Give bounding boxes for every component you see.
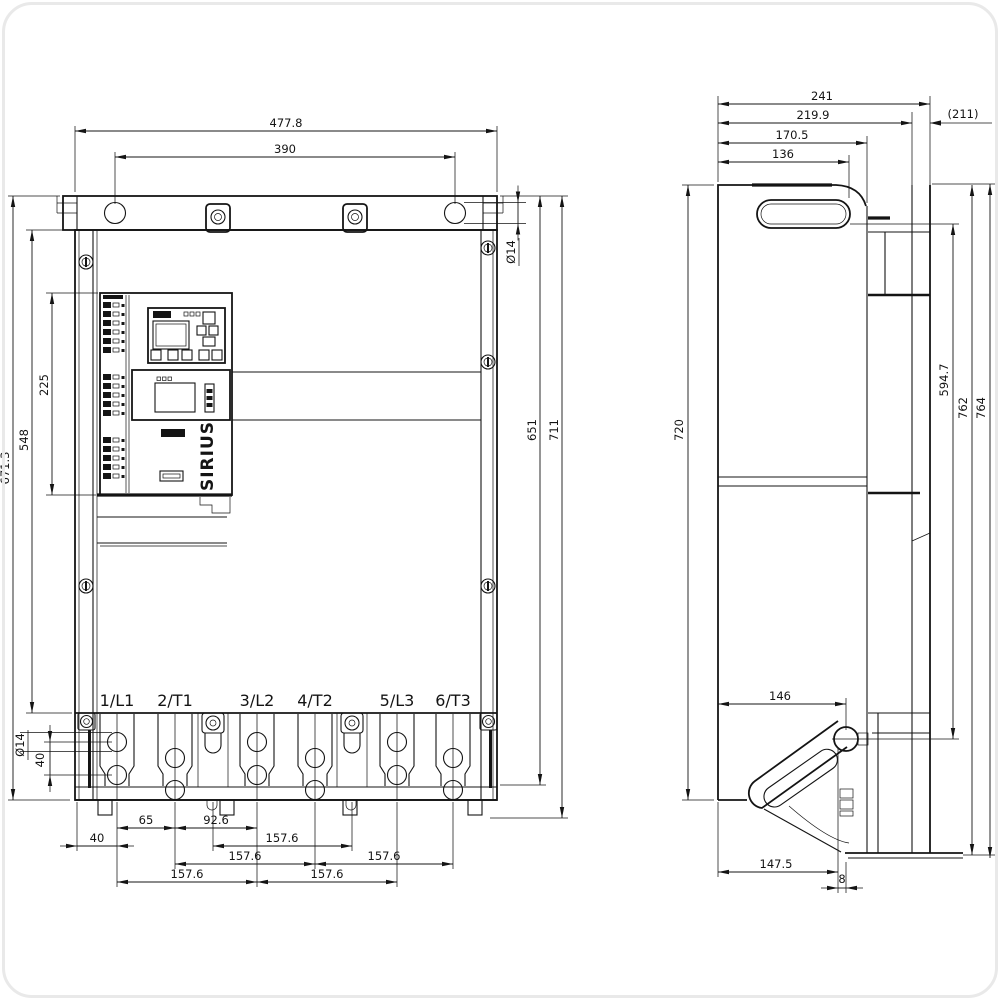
terminal-clamp-right-edge bbox=[480, 713, 497, 730]
front-dimensions: 477.8 390 671.3 548 bbox=[0, 116, 568, 887]
dim-label: Ø14 bbox=[13, 733, 27, 757]
dim-label: 146 bbox=[769, 689, 791, 703]
dim-depth-170-5: 170.5 bbox=[718, 128, 867, 203]
dim-lip-8: 8 bbox=[821, 862, 863, 893]
dim-label: 147.5 bbox=[760, 857, 793, 871]
status-display bbox=[155, 383, 195, 412]
dim-label: Ø14 bbox=[504, 240, 518, 264]
dim-l1-l2-157-6: 157.6 bbox=[117, 867, 257, 884]
terminal-label-3: 3/L2 bbox=[240, 691, 275, 710]
dim-label: 8 bbox=[838, 872, 845, 886]
terminal-clamp-mid-2 bbox=[341, 713, 363, 753]
dim-l1-t1-65: 65 bbox=[117, 813, 175, 830]
dim-label: 477.8 bbox=[270, 116, 303, 130]
dim-label: 241 bbox=[811, 89, 833, 103]
sirius-module: SIRIUS bbox=[97, 293, 232, 495]
dim-height-651: 651 bbox=[500, 196, 568, 785]
dim-slot-to-hole-594-7: 594.7 bbox=[832, 224, 959, 739]
dim-label: 40 bbox=[90, 831, 105, 845]
dim-height-762: 762 bbox=[932, 184, 996, 855]
dim-label: 225 bbox=[37, 374, 51, 396]
terminal-label-4: 4/T2 bbox=[297, 691, 333, 710]
dim-label: 157.6 bbox=[368, 849, 401, 863]
side-dimensions: 241 219.9 (211) 170.5 136 bbox=[672, 89, 996, 893]
terminal-label-2: 2/T1 bbox=[157, 691, 193, 710]
dim-hole-spacing-x: 390 bbox=[115, 142, 455, 204]
terminal-block: 1/L1 2/T1 3/L2 4/T2 5/L3 6/T3 bbox=[78, 691, 497, 800]
drawing-page: SIRIUS bbox=[0, 0, 1000, 1000]
dim-label: 720 bbox=[672, 419, 686, 441]
dim-label: (211) bbox=[948, 107, 979, 121]
dim-label: 219.9 bbox=[797, 108, 830, 122]
dim-label: 157.6 bbox=[229, 849, 262, 863]
front-view: SIRIUS bbox=[0, 116, 568, 887]
dim-label: 762 bbox=[956, 397, 970, 419]
dim-l2-l3-157-6: 157.6 bbox=[257, 867, 397, 884]
display-section bbox=[132, 370, 230, 420]
dim-body-height: 548 bbox=[17, 230, 72, 713]
terminal-label-6: 6/T3 bbox=[435, 691, 471, 710]
dim-label: 548 bbox=[17, 429, 31, 451]
dim-depth-136: 136 bbox=[718, 147, 849, 198]
dim-plate-height-720: 720 bbox=[672, 185, 714, 800]
dim-label: 157.6 bbox=[171, 867, 204, 881]
dim-module-height: 225 bbox=[37, 293, 98, 495]
dim-label: 157.6 bbox=[266, 831, 299, 845]
dim-label: 390 bbox=[274, 142, 296, 156]
dim-height-764: 764 bbox=[974, 184, 992, 858]
dim-depth-219-9: 219.9 bbox=[718, 108, 912, 125]
dim-label: 594.7 bbox=[937, 364, 951, 397]
dim-t1-l2-92-6: 92.6 bbox=[175, 813, 257, 830]
terminal-label-1: 1/L1 bbox=[100, 691, 135, 710]
dim-hole-offset-146: 146 bbox=[718, 689, 846, 730]
flange-clamp-right bbox=[343, 204, 367, 232]
dim-depth-241: 241 bbox=[718, 89, 930, 106]
dim-label: 711 bbox=[547, 419, 561, 441]
dim-label: 157.6 bbox=[311, 867, 344, 881]
dim-height-711: 711 bbox=[490, 196, 568, 818]
dim-t2-t3-157-6: 157.6 bbox=[315, 849, 453, 866]
dim-label: 671.3 bbox=[0, 452, 12, 485]
dim-slot-pitch-157-6: 157.6 bbox=[213, 831, 352, 848]
flange-clamp-left bbox=[206, 204, 230, 232]
side-outline bbox=[718, 96, 963, 858]
mounting-hole-top-right bbox=[445, 203, 466, 224]
screw-icon bbox=[79, 255, 93, 269]
control-terminal-strip bbox=[103, 302, 125, 479]
dim-bracket-147-5: 147.5 bbox=[718, 748, 838, 893]
dim-label: 40 bbox=[33, 753, 47, 768]
dim-hole-dia-top-right: Ø14 bbox=[464, 186, 526, 267]
dim-label: 651 bbox=[525, 419, 539, 441]
keypad-display-bar bbox=[153, 311, 171, 318]
dimension-drawing: SIRIUS bbox=[0, 0, 1000, 1000]
brand-text: SIRIUS bbox=[198, 421, 218, 491]
keypad-display bbox=[153, 321, 189, 349]
terminal-label-5: 5/L3 bbox=[380, 691, 415, 710]
dim-label: 764 bbox=[974, 397, 988, 419]
dim-label: 170.5 bbox=[776, 128, 809, 142]
dim-edge-offset-40: 40 bbox=[60, 831, 134, 848]
dim-label: 65 bbox=[139, 813, 154, 827]
label-plate bbox=[161, 429, 185, 437]
mounting-hole-top-left bbox=[105, 203, 126, 224]
dim-depth-211-aux: (211) bbox=[930, 107, 992, 126]
dim-label: 136 bbox=[772, 147, 794, 161]
dim-overall-height: 671.3 bbox=[0, 196, 70, 800]
dim-label: 92.6 bbox=[203, 813, 229, 827]
dim-t1-t2-157-6: 157.6 bbox=[175, 849, 315, 866]
keypad-panel bbox=[148, 308, 225, 363]
screw-icon bbox=[79, 579, 93, 593]
terminal-clamp-mid-1 bbox=[202, 713, 224, 753]
side-view: 241 219.9 (211) 170.5 136 bbox=[672, 89, 996, 893]
